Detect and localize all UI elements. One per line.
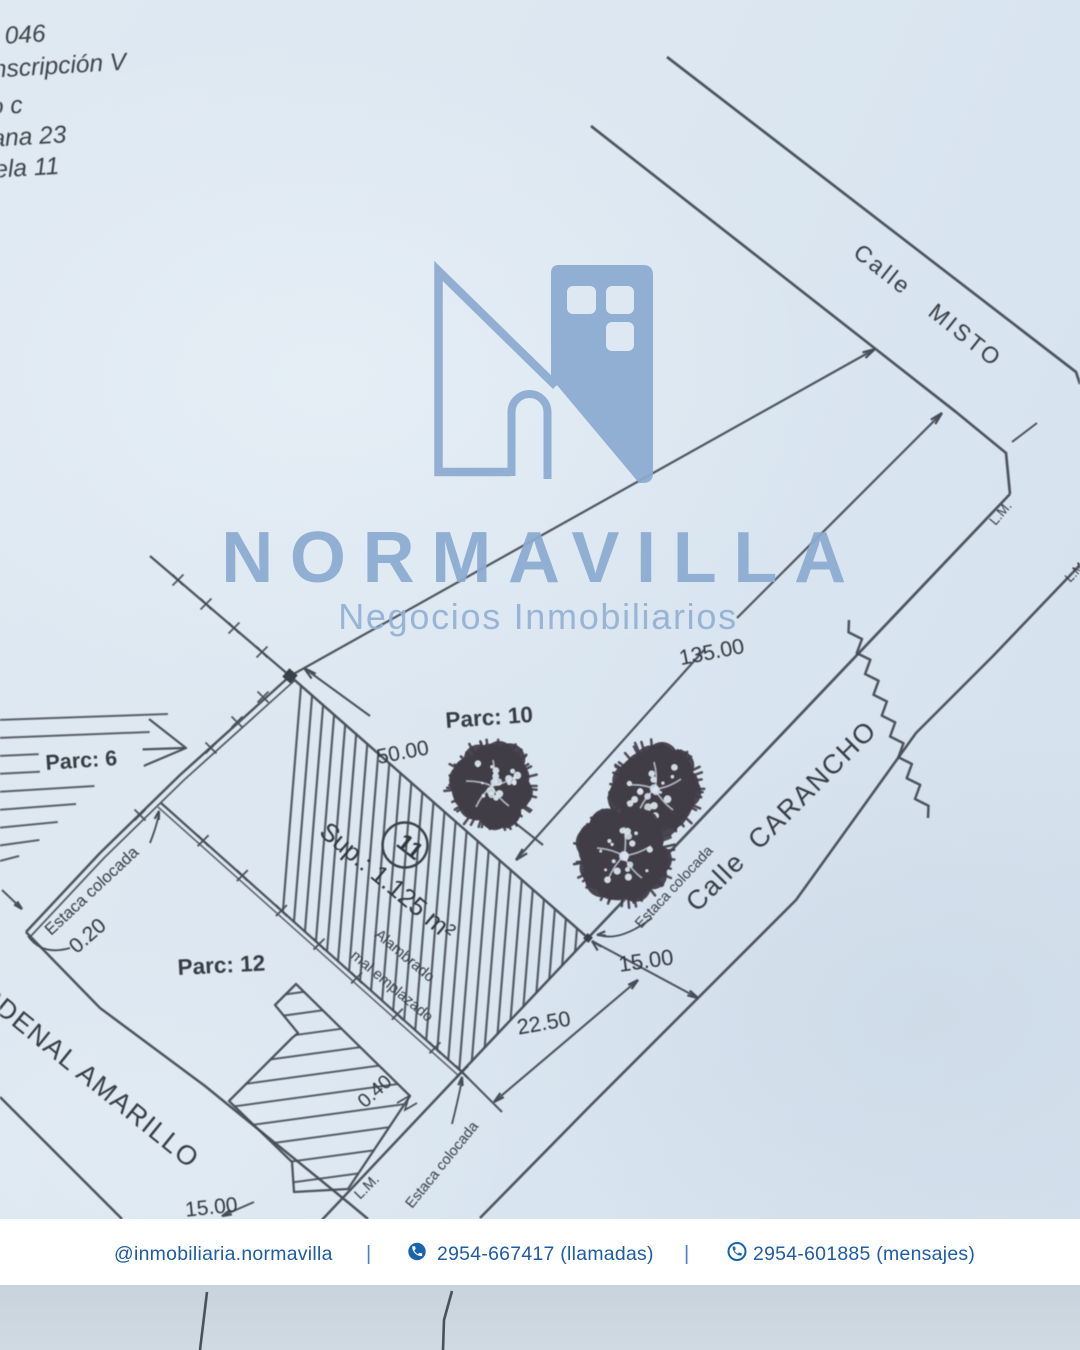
svg-text:2954-667417 (llamadas): 2954-667417 (llamadas) [437, 1243, 654, 1265]
svg-text:|: | [366, 1243, 371, 1265]
svg-text:NORMAVILLA: NORMAVILLA [221, 518, 863, 598]
svg-text:@inmobiliaria.normavilla: @inmobiliaria.normavilla [114, 1243, 333, 1265]
svg-text:|: | [684, 1243, 689, 1265]
svg-text:2954-601885 (mensajes): 2954-601885 (mensajes) [753, 1243, 975, 1265]
svg-text:Negocios Inmobiliarios: Negocios Inmobiliarios [338, 596, 738, 637]
